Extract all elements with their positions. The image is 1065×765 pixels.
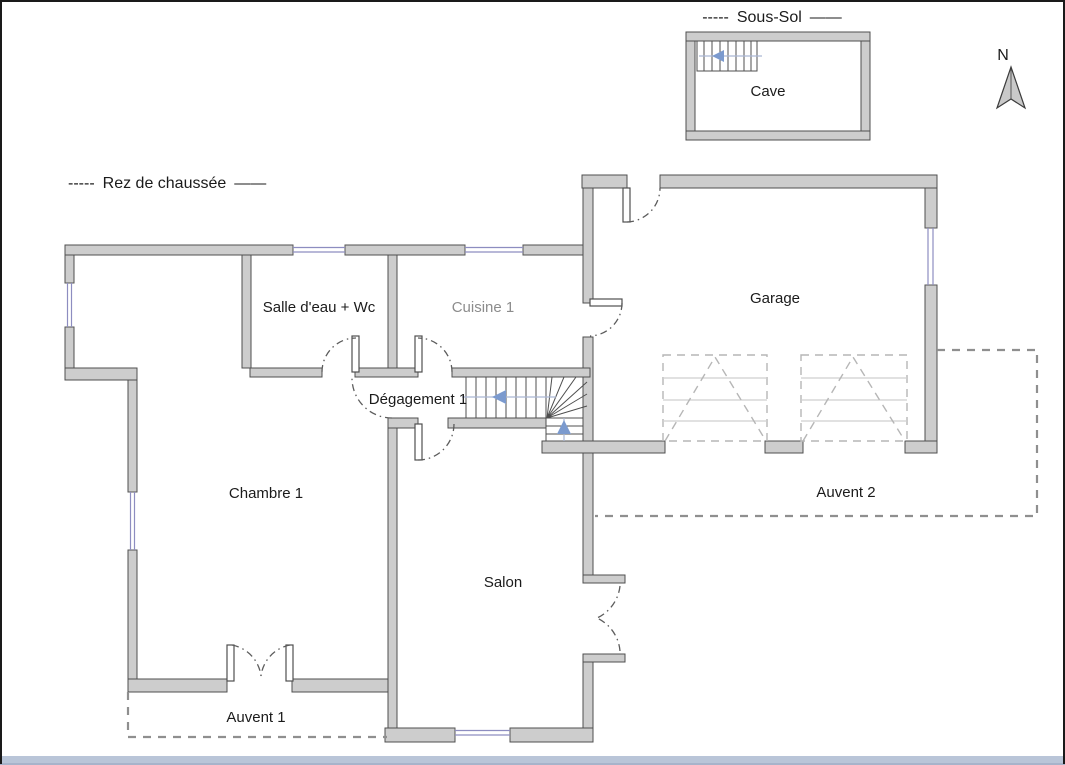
- door-leaf: [352, 336, 359, 372]
- window: [465, 245, 523, 255]
- room-label-garage: Garage: [750, 290, 800, 307]
- cave-stairs-icon: [697, 41, 762, 71]
- room-label-chambre: Chambre 1: [229, 485, 303, 502]
- window-bottom-strip: [2, 756, 1063, 763]
- door-arcs: [232, 188, 660, 676]
- room-label-salle-eau: Salle d'eau + Wc: [263, 299, 376, 316]
- door-arc: [322, 338, 356, 372]
- door-leaf: [590, 299, 622, 306]
- window-frame: [1, 1, 1064, 764]
- window: [65, 283, 74, 327]
- room-label-auvent1: Auvent 1: [226, 709, 285, 726]
- rez-plan: -----Rez de chaussée——: [65, 175, 1037, 742]
- window: [128, 492, 137, 550]
- window: [455, 728, 510, 738]
- main-stairs-icon: [462, 377, 587, 441]
- room-label-degagement: Dégagement 1: [369, 391, 467, 408]
- north-label: N: [997, 47, 1009, 64]
- door-arc: [590, 303, 622, 336]
- room-label-cuisine: Cuisine 1: [452, 299, 515, 316]
- door-arc: [597, 618, 620, 651]
- garage-door-symbol: [801, 355, 907, 441]
- door-leaf: [415, 424, 422, 460]
- stairs-direction-arrow: [492, 390, 506, 404]
- door-leaf: [415, 336, 422, 372]
- cave-plan: -----Sous-Sol—— Cave: [686, 9, 870, 140]
- door-arc: [627, 188, 660, 222]
- window: [293, 245, 345, 255]
- walls: [65, 175, 937, 742]
- floor-label-sous-sol: -----Sous-Sol——: [702, 9, 842, 26]
- door-leaf: [286, 645, 293, 681]
- garage-door-symbol: [663, 355, 767, 441]
- door-arc: [418, 424, 454, 460]
- room-labels: Salle d'eau + Wc Cuisine 1 Garage Dégage…: [226, 290, 875, 726]
- door-arc: [232, 645, 261, 676]
- door-arc: [418, 338, 452, 372]
- floor-plan-page: -----Sous-Sol—— Cave N -----Rez de chaus…: [0, 0, 1065, 765]
- window: [925, 228, 937, 285]
- room-label-cave: Cave: [750, 83, 785, 100]
- floor-plan-drawing: -----Sous-Sol—— Cave N -----Rez de chaus…: [0, 0, 1065, 765]
- door-leaf: [227, 645, 234, 681]
- door-leaf: [623, 188, 630, 222]
- door-arc: [597, 586, 620, 618]
- floor-label-rez: -----Rez de chaussée——: [68, 175, 266, 192]
- room-label-auvent2: Auvent 2: [816, 484, 875, 501]
- north-indicator: N: [997, 47, 1025, 108]
- room-label-salon: Salon: [484, 574, 522, 591]
